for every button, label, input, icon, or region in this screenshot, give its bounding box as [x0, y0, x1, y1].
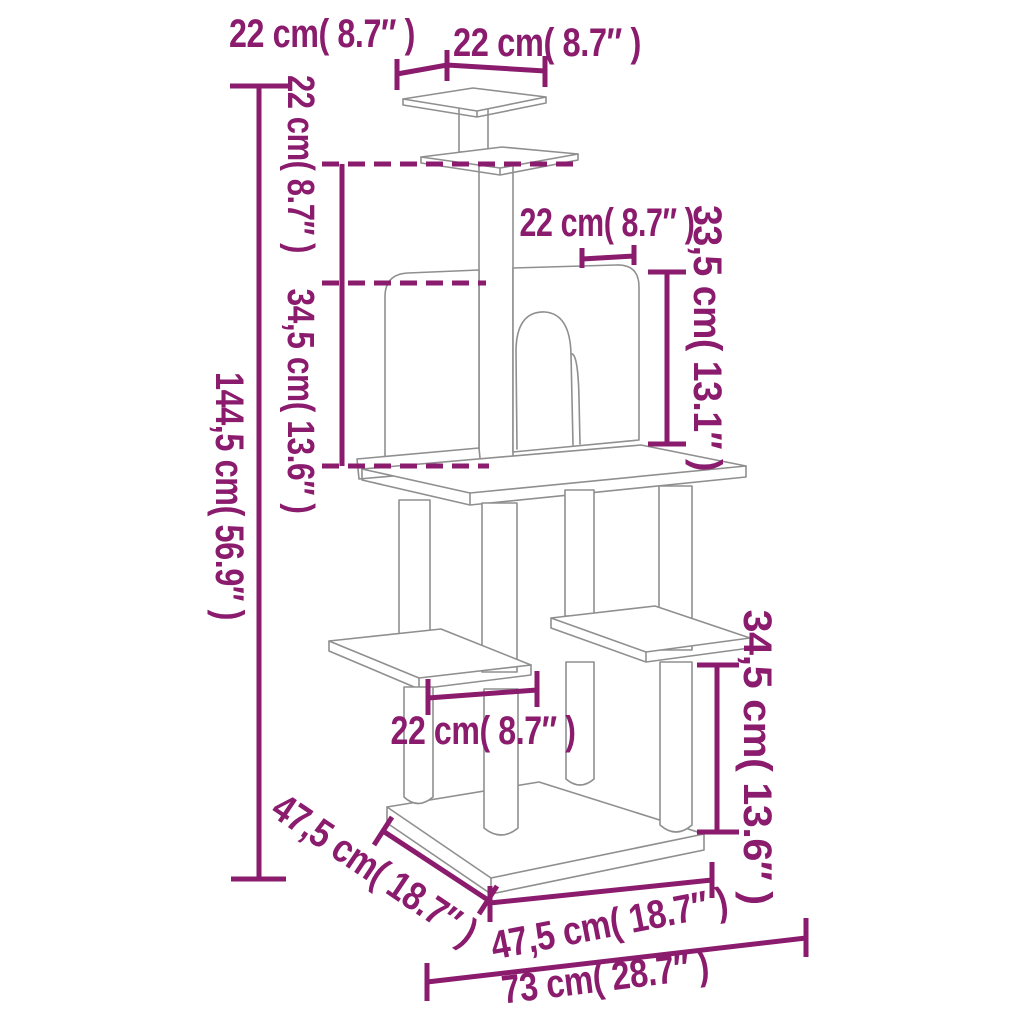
- label-top-post-height: 22 cm( 8.7″ ): [279, 75, 321, 253]
- dimension-diagram: 22 cm( 8.7″ ) 22 cm( 8.7″ ) 22 cm( 8.7″ …: [0, 0, 1024, 1024]
- label-total-height: 144,5 cm( 56.9″ ): [207, 372, 251, 620]
- condo-left-face: [385, 270, 479, 468]
- label-door-width: 22 cm( 8.7″ ): [520, 201, 695, 245]
- main-post: [479, 161, 513, 470]
- label-condo-height: 34,5 cm( 13.6″ ): [279, 289, 321, 514]
- dim-line-lower-right-height: [697, 665, 739, 832]
- label-lower-section-height: 34,5 cm( 13.6″ ): [735, 610, 779, 905]
- post-left-back-upper: [399, 500, 430, 641]
- cat-tree-diagram-canvas: 22 cm( 8.7″ ) 22 cm( 8.7″ ) 22 cm( 8.7″ …: [0, 0, 1024, 1024]
- label-top-platform-width: 22 cm( 8.7″ ): [453, 21, 641, 65]
- label-top-platform-depth: 22 cm( 8.7″ ): [229, 12, 415, 56]
- label-condo-side-height: 33,5 cm( 13.1″ ): [685, 205, 729, 471]
- dim-line-condo-side: [648, 272, 686, 444]
- label-platform-spacing: 22 cm( 8.7″ ): [391, 709, 576, 753]
- post-right-back-upper: [565, 490, 594, 616]
- post-right-front-lower: [660, 662, 692, 832]
